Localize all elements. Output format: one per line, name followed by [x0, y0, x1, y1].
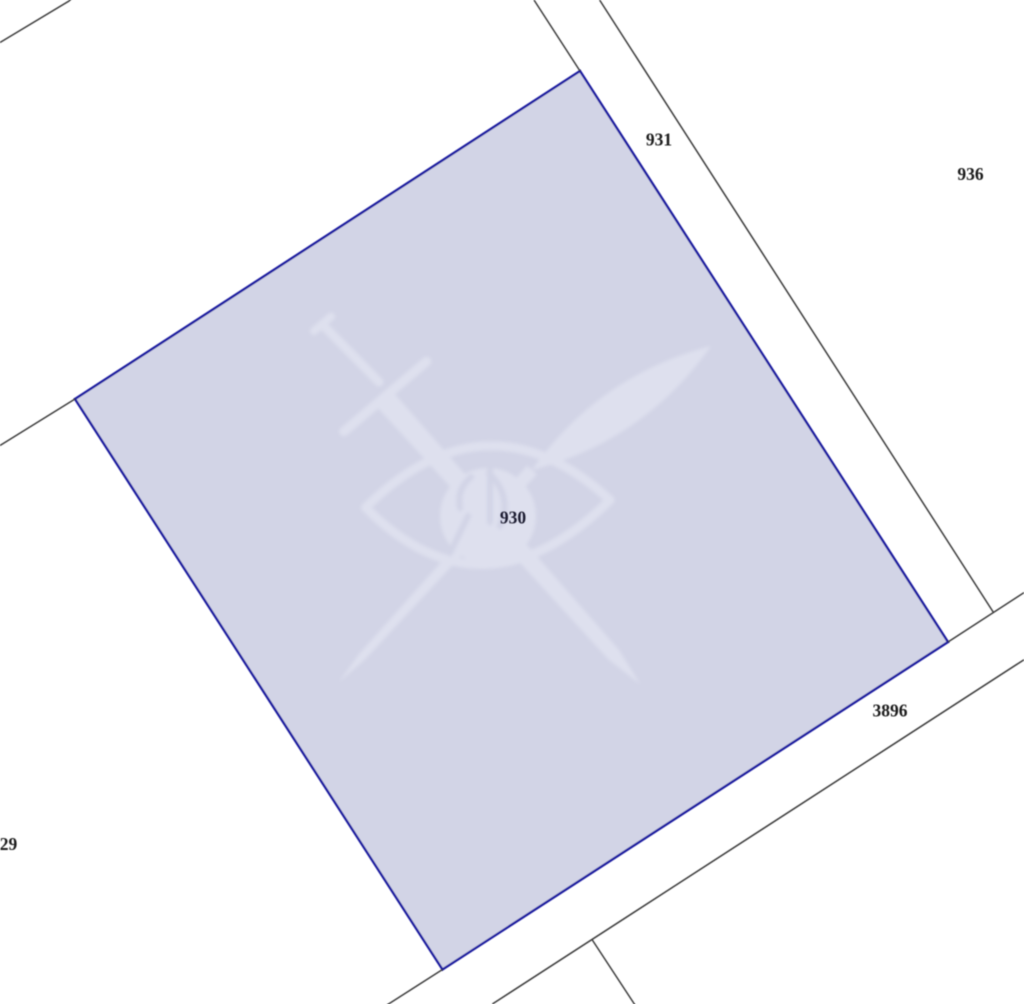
svg-text:931: 931 — [646, 130, 672, 150]
svg-text:936: 936 — [957, 164, 984, 184]
svg-text:3896: 3896 — [873, 701, 908, 721]
svg-text:930: 930 — [500, 508, 527, 528]
svg-text:929: 929 — [0, 834, 18, 854]
